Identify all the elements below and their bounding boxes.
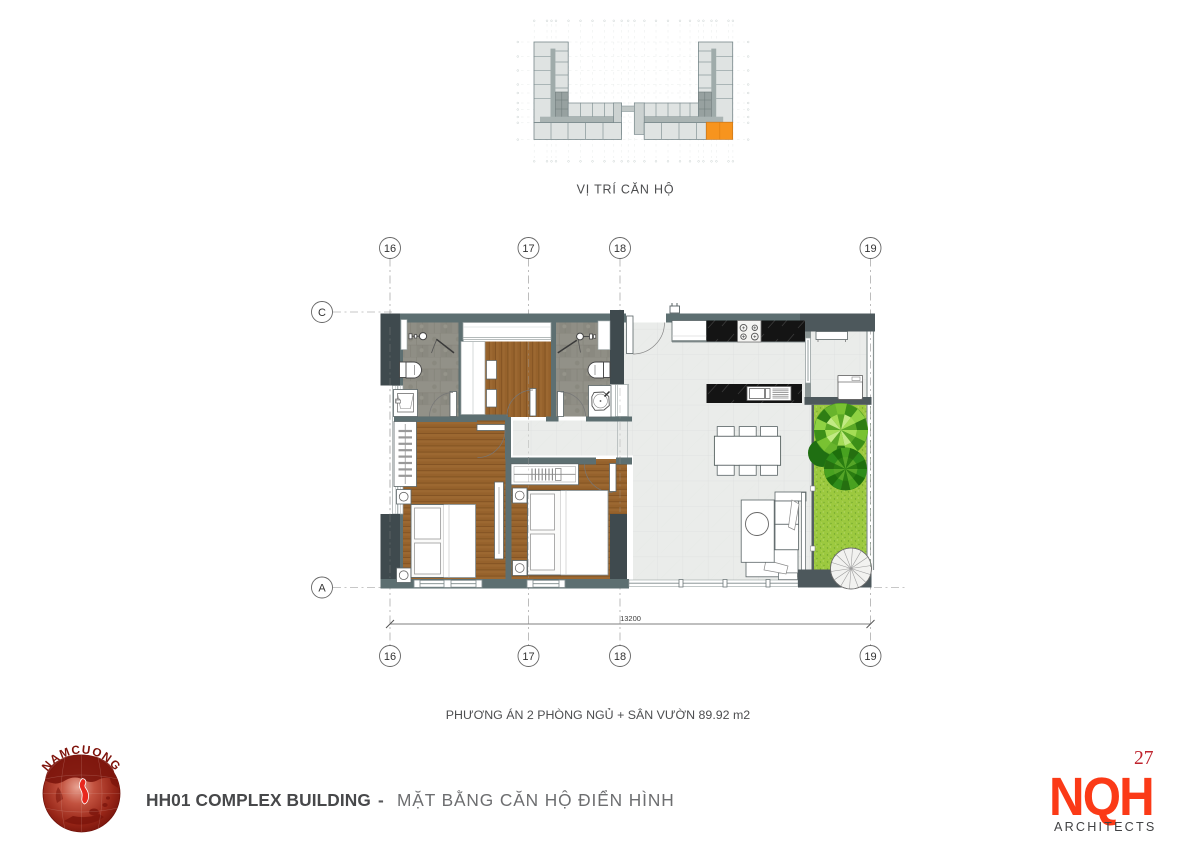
svg-text:13200: 13200 <box>620 614 641 623</box>
svg-text:18: 18 <box>614 243 626 255</box>
svg-text:19: 19 <box>864 651 876 663</box>
svg-text:16: 16 <box>384 243 396 255</box>
svg-text:17: 17 <box>522 243 534 255</box>
svg-text:19: 19 <box>864 243 876 255</box>
svg-text:17: 17 <box>522 651 534 663</box>
svg-text:16: 16 <box>384 651 396 663</box>
svg-text:18: 18 <box>614 651 626 663</box>
svg-text:VỊ TRÍ CĂN HỘ: VỊ TRÍ CĂN HỘ <box>577 182 675 197</box>
svg-text:A: A <box>318 583 326 595</box>
svg-text:C: C <box>318 307 326 319</box>
